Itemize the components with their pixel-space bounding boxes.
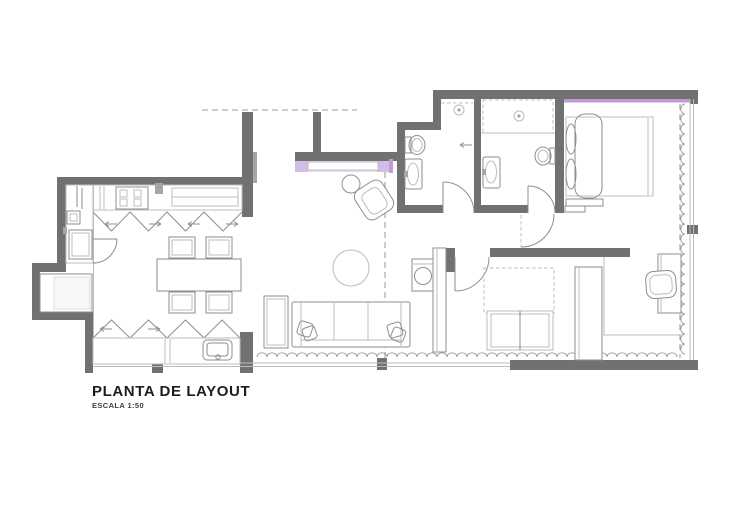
second-bedroom <box>484 254 681 360</box>
washing-area-icon <box>67 211 80 224</box>
console-highlight-edge <box>389 159 393 173</box>
console-highlight-cap-right <box>377 161 390 172</box>
toilet-bowl-inner <box>412 139 422 152</box>
tap-icon <box>63 227 67 234</box>
floor-plan-drawing <box>0 0 750 530</box>
toilet-bowl-inner <box>538 150 548 162</box>
bedroom-wall-highlight-strip <box>564 99 690 103</box>
double-bed <box>566 117 653 196</box>
fold-arrow-left <box>100 327 112 332</box>
dining-chair-seat <box>209 295 229 310</box>
washbasin-bowl <box>486 161 497 183</box>
dining-chair-seat <box>172 295 192 310</box>
door-swing-arc-bath-left <box>443 182 474 213</box>
dining-table <box>157 259 241 291</box>
console-cabinet <box>308 162 378 170</box>
wall-bath-bottom-mid <box>474 205 528 213</box>
wall-suite-divider <box>555 97 564 213</box>
dining-chair-seat <box>209 240 229 255</box>
washbasin-icon <box>404 159 422 189</box>
wall-alcove-bottom <box>32 312 88 320</box>
washbasin-bowl <box>408 163 419 185</box>
wall-between-baths <box>474 97 481 213</box>
service-box-inner <box>54 277 90 309</box>
armchair-body <box>351 177 396 223</box>
shower-light-icon <box>514 111 524 121</box>
curtain-icon-right <box>681 104 685 354</box>
toilet-icon <box>405 136 425 155</box>
page-title: PLANTA DE LAYOUT <box>92 383 250 400</box>
laundry-tub-inner <box>72 233 89 256</box>
fold-arrow-right <box>149 222 161 227</box>
folding-doors-icon-bottom <box>93 320 240 338</box>
washbasin-icon <box>482 157 500 188</box>
round-rug <box>333 250 369 286</box>
tap-icon <box>482 169 486 175</box>
wall-hall <box>295 152 398 161</box>
foot-bench <box>566 199 603 206</box>
wall-kitchen-bottom-left <box>85 312 93 373</box>
counter-column <box>155 183 163 194</box>
scale-label: ESCALA 1:50 <box>92 401 250 410</box>
wall-spine <box>242 112 253 217</box>
side-table <box>264 296 288 348</box>
shower-light-dot <box>518 115 520 117</box>
wall-bath-left <box>397 122 405 213</box>
wall-spine-notch <box>253 152 257 183</box>
bathroom-ensuite <box>481 100 555 213</box>
fold-arrow-right <box>148 327 160 332</box>
armchair <box>351 177 396 223</box>
dining-chair-seat <box>172 240 192 255</box>
folding-doors-icon-top <box>93 212 242 231</box>
wardrobe <box>433 248 446 352</box>
wall-kitchen-left <box>57 177 66 263</box>
wall-bottom-pier <box>377 358 387 370</box>
wall-bedrooms-divider <box>490 248 630 257</box>
desk-chair <box>645 270 677 299</box>
wall-alcove-left <box>32 263 40 320</box>
console-highlight-cap-left <box>295 161 308 172</box>
shower-light-icon <box>454 105 464 115</box>
living-room <box>264 175 446 352</box>
wall-facade-pier <box>687 225 698 234</box>
tap-icon <box>404 171 408 177</box>
wall-top <box>433 90 697 99</box>
wall-bottom-right <box>510 360 698 370</box>
wall-kitchen-top <box>57 177 243 185</box>
wall-bath-bottom-left <box>397 205 443 213</box>
door-swing-arc-ensuite <box>528 186 555 213</box>
toilet-icon <box>535 147 555 165</box>
bedroom-suite <box>565 114 653 212</box>
shower-light-dot <box>458 109 460 111</box>
canopy-projection <box>484 268 554 313</box>
title-block: PLANTA DE LAYOUT ESCALA 1:50 <box>92 383 250 410</box>
foot-bench-small <box>565 206 585 212</box>
dining-area <box>157 237 241 313</box>
door-swing-arc-suite <box>521 214 554 247</box>
wall-entry-stub <box>313 112 321 153</box>
door-swing-arc-laundry <box>93 239 117 263</box>
washing-area-inner <box>70 214 77 221</box>
wall-bedroom2-jamb <box>446 248 455 272</box>
curtain-icon-bottom <box>257 353 677 357</box>
floor-plan-sheet: PLANTA DE LAYOUT ESCALA 1:50 <box>0 0 750 530</box>
direction-arrow <box>460 143 472 148</box>
